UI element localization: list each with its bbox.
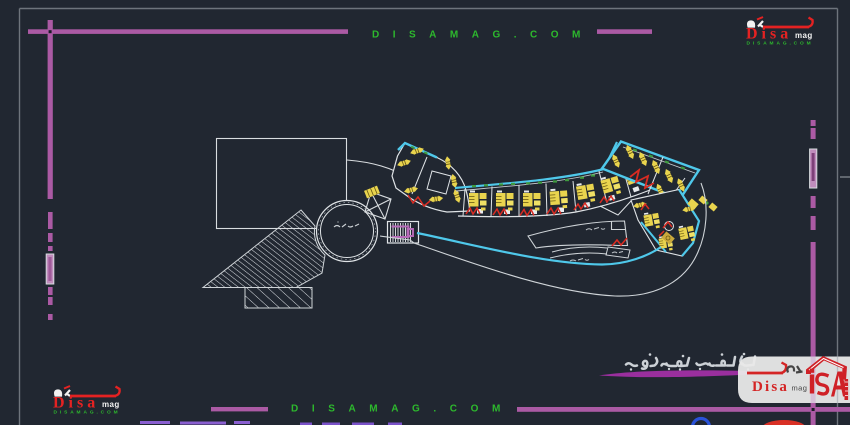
svg-text:DISAMAG.COM: DISAMAG.COM [372, 30, 594, 41]
svg-text:DISAMAG.COM: DISAMAG.COM [291, 404, 514, 415]
svg-text:mag: mag [792, 384, 808, 393]
svg-text:Disa: Disa [752, 379, 789, 395]
